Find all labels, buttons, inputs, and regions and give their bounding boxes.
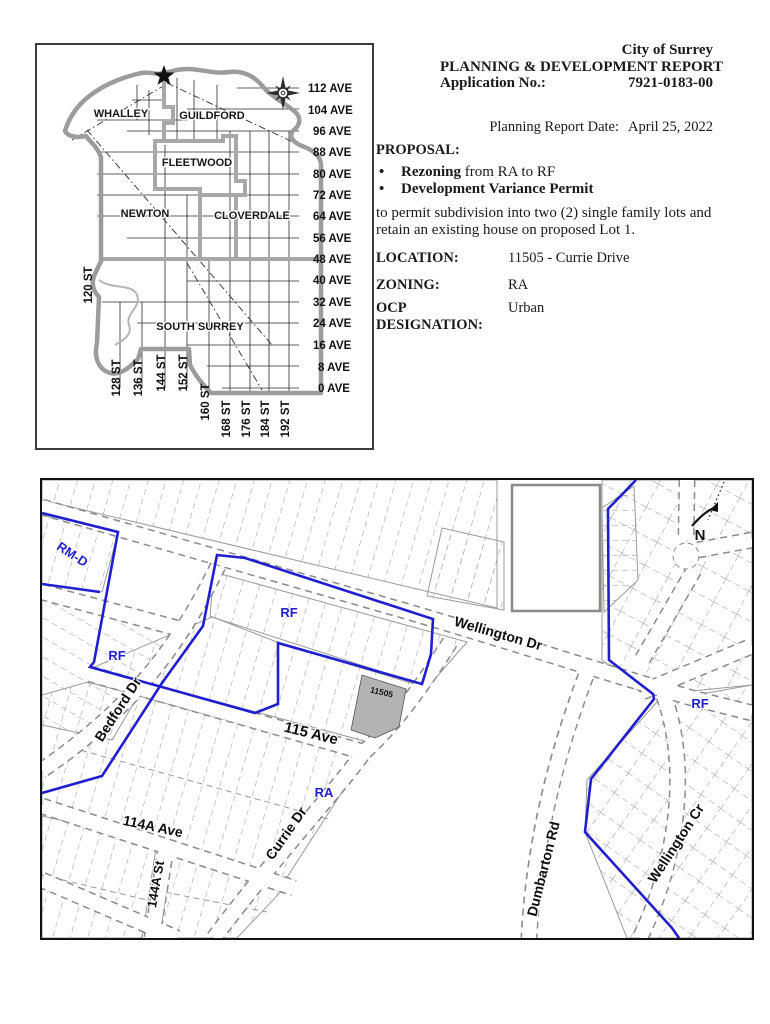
region-label-cloverdale: CLOVERDALE <box>214 210 290 222</box>
avenue-label: 72 AVE <box>313 190 352 202</box>
application-number-value: 7921-0183-00 <box>628 75 713 92</box>
region-label-newton: NEWTON <box>121 208 170 220</box>
application-number-label: Application No.: <box>440 75 546 92</box>
bullet-2-text: Development Variance Permit <box>401 181 593 198</box>
zone-label-rf-centre: RF <box>280 605 297 620</box>
street-label: 160 ST <box>200 383 212 420</box>
street-label: 168 ST <box>221 400 233 437</box>
ocp-label: OCP DESIGNATION: <box>376 300 508 334</box>
street-label: 120 ST <box>83 266 95 303</box>
compass-rose-icon <box>266 76 300 110</box>
report-date-row: Planning Report Date:April 25, 2022 <box>440 119 713 136</box>
zone-label-rf-west: RF <box>108 648 125 663</box>
ocp-value: Urban <box>508 300 544 334</box>
river-line <box>99 280 138 345</box>
street-label: 136 ST <box>133 359 145 396</box>
avenue-label: 40 AVE <box>313 275 352 287</box>
avenue-label: 32 AVE <box>313 297 352 309</box>
bullet-icon: • <box>379 181 401 198</box>
avenue-label: 96 AVE <box>313 126 352 138</box>
zone-label-rf-east: RF <box>691 696 708 711</box>
agency-title: City of Surrey <box>440 42 713 59</box>
overview-highway-lines <box>72 83 295 390</box>
street-label: 128 ST <box>111 359 123 396</box>
region-label-guildford: GUILDFORD <box>179 110 244 122</box>
zoning-value: RA <box>508 277 528 294</box>
zoning-map-canvas: 11505 RM-D RF RF RF RA Wellington Dr Bed… <box>42 480 752 938</box>
report-header: City of Surrey PLANNING & DEVELOPMENT RE… <box>440 42 713 92</box>
region-label-whalley: WHALLEY <box>94 108 149 120</box>
street-label: 152 ST <box>178 354 190 391</box>
report-title: PLANNING & DEVELOPMENT REPORT <box>440 59 713 76</box>
zone-label-ra: RA <box>315 785 334 800</box>
avenue-labels: 112 AVE 104 AVE 96 AVE 88 AVE 80 AVE 72 … <box>308 83 353 395</box>
north-label: N <box>695 527 706 544</box>
cul-de-sac <box>673 543 699 569</box>
location-value: 11505 - Currie Drive <box>508 250 629 267</box>
zoning-context-map: 11505 RM-D RF RF RF RA Wellington Dr Bed… <box>40 478 754 940</box>
street-label: 192 ST <box>280 400 292 437</box>
avenue-label: 112 AVE <box>308 83 352 95</box>
location-label: LOCATION: <box>376 250 508 267</box>
report-date-value: April 25, 2022 <box>628 119 713 135</box>
application-number-row: Application No.: 7921-0183-00 <box>440 75 713 92</box>
avenue-label: 24 AVE <box>313 318 352 330</box>
avenue-label: 8 AVE <box>318 362 350 374</box>
avenue-label: 0 AVE <box>318 383 350 395</box>
surrey-overview-map: WHALLEY GUILDFORD FLEETWOOD NEWTON CLOVE… <box>35 43 374 450</box>
proposal-bullet-1: • Rezoning from RA to RF <box>379 164 555 181</box>
proposal-description: to permit subdivision into two (2) singl… <box>376 205 732 238</box>
avenue-label: 80 AVE <box>313 169 352 181</box>
report-date-label: Planning Report Date: <box>489 119 619 135</box>
overview-map-canvas: WHALLEY GUILDFORD FLEETWOOD NEWTON CLOVE… <box>37 45 372 448</box>
avenue-label: 104 AVE <box>308 105 353 117</box>
region-label-south-surrey: SOUTH SURREY <box>156 321 244 333</box>
bullet-icon: • <box>379 164 401 181</box>
avenue-label: 56 AVE <box>313 233 352 245</box>
zoning-row: ZONING: RA <box>376 277 528 294</box>
planning-report-page: City of Surrey PLANNING & DEVELOPMENT RE… <box>0 0 770 1024</box>
street-label: 144 ST <box>156 354 168 391</box>
avenue-label: 16 AVE <box>313 340 352 352</box>
zoning-label: ZONING: <box>376 277 508 294</box>
street-label: 176 ST <box>241 400 253 437</box>
region-label-fleetwood: FLEETWOOD <box>162 157 232 169</box>
location-row: LOCATION: 11505 - Currie Drive <box>376 250 629 267</box>
ocp-designation-row: OCP DESIGNATION: Urban <box>376 300 544 334</box>
bullet-1-rest: from RA to RF <box>461 164 555 180</box>
proposal-heading: PROPOSAL: <box>376 142 460 159</box>
proposal-bullet-2: • Development Variance Permit <box>379 181 593 198</box>
avenue-label: 64 AVE <box>313 211 352 223</box>
street-label: 184 ST <box>260 400 272 437</box>
bullet-1-text: Rezoning from RA to RF <box>401 164 555 181</box>
bullet-1-bold: Rezoning <box>401 164 461 180</box>
avenue-label: 88 AVE <box>313 147 352 159</box>
avenue-label: 48 AVE <box>313 254 352 266</box>
institutional-parcel <box>512 485 600 611</box>
